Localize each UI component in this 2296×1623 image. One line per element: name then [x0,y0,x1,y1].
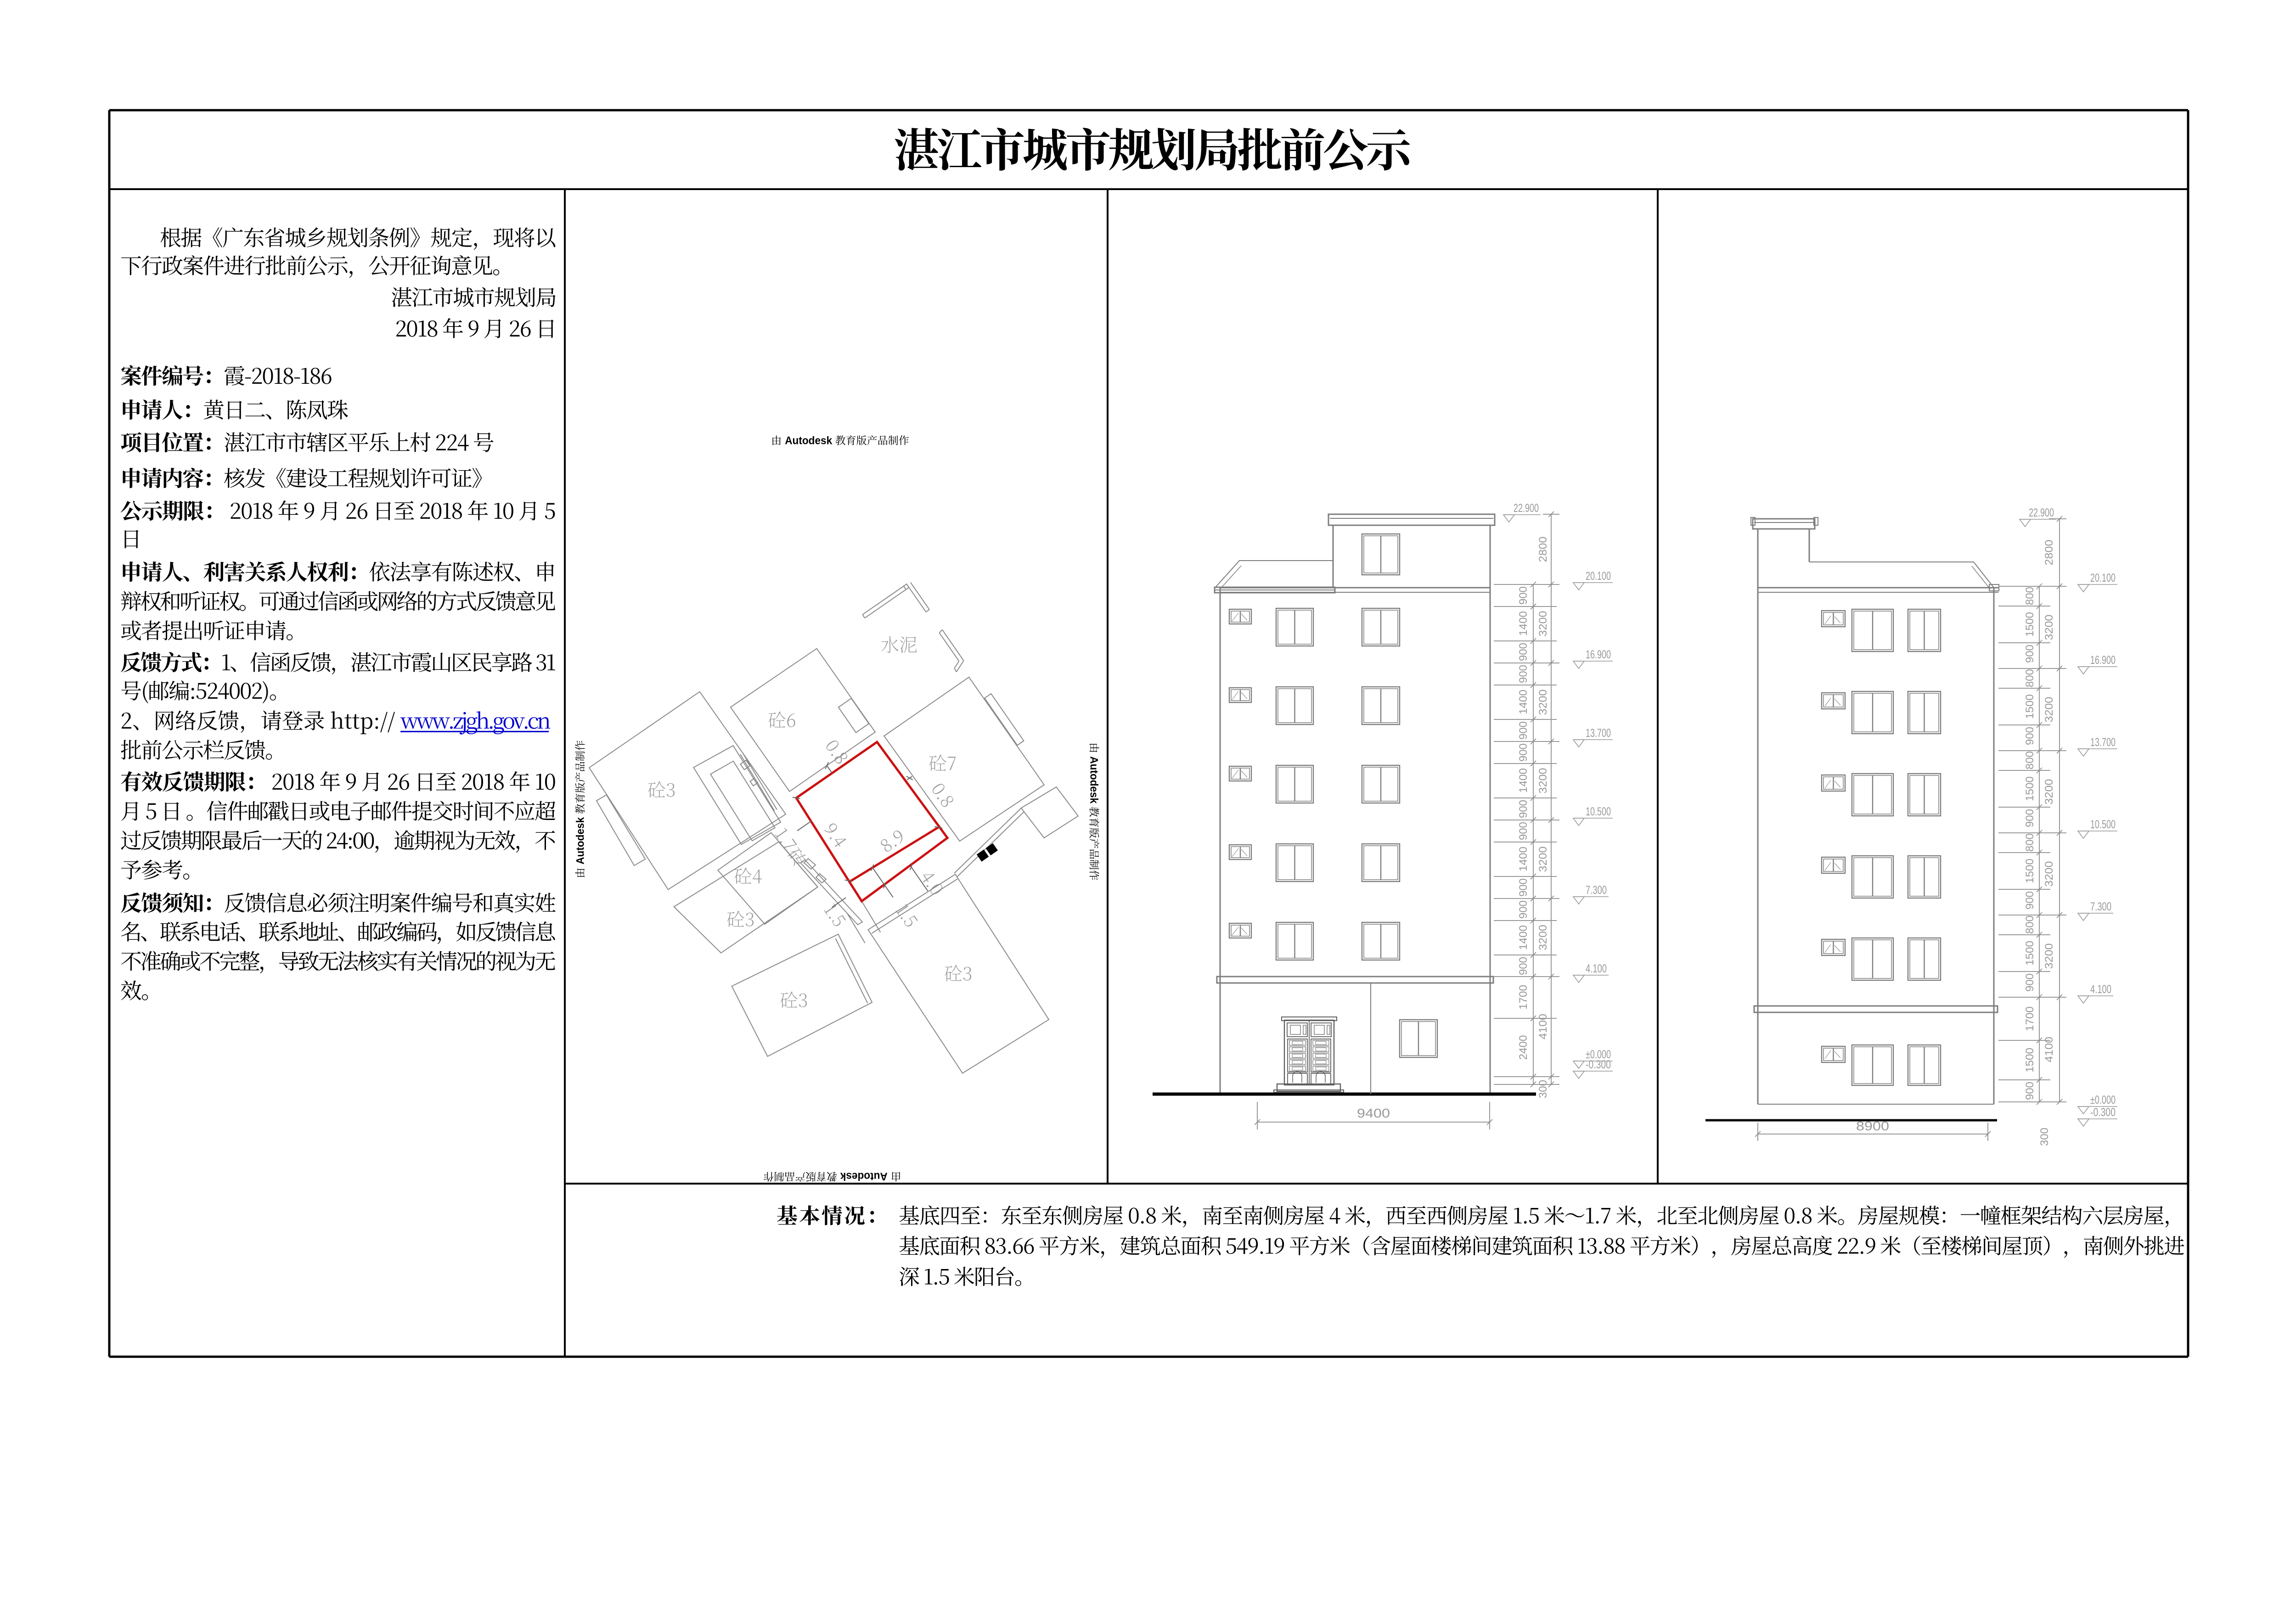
svg-text:Autodesk: Autodesk [840,1170,888,1183]
svg-text:900: 900 [1517,721,1530,740]
svg-text:300: 300 [1537,1080,1549,1098]
svg-text:900: 900 [1517,900,1530,919]
svg-text:1500: 1500 [2024,1048,2036,1073]
svg-text:900: 900 [2024,727,2036,745]
svg-text:16.900: 16.900 [2090,654,2116,667]
svg-text:Autodesk: Autodesk [1088,756,1100,804]
svg-text:3200: 3200 [1537,925,1549,950]
svg-text:800: 800 [2024,833,2036,852]
svg-text:900: 900 [2024,809,2036,827]
svg-text:4100: 4100 [2043,1037,2055,1062]
svg-text:20.100: 20.100 [1586,570,1611,583]
svg-text:1500: 1500 [2024,859,2036,883]
svg-text:3200: 3200 [2043,861,2055,887]
svg-text:22.900: 22.900 [1514,502,1539,515]
svg-text:2800: 2800 [1537,537,1549,562]
svg-text:3200: 3200 [1537,847,1549,872]
svg-text:Autodesk: Autodesk [574,817,586,865]
svg-text:3200: 3200 [2043,779,2055,805]
svg-text:900: 900 [1517,878,1530,897]
svg-text:1500: 1500 [2024,612,2036,637]
svg-text:7.300: 7.300 [1586,884,1607,897]
svg-text:1700: 1700 [2024,1006,2036,1031]
svg-text:900: 900 [1517,822,1530,840]
svg-text:3200: 3200 [2043,615,2055,640]
svg-text:2400: 2400 [1517,1035,1530,1060]
svg-text:900: 900 [2024,1082,2036,1100]
svg-text:9400: 9400 [1357,1106,1390,1120]
svg-text:800: 800 [2024,587,2036,605]
svg-text:900: 900 [1517,800,1530,818]
svg-text:-0.300: -0.300 [2090,1106,2116,1119]
svg-text:10.500: 10.500 [1586,805,1611,818]
svg-text:Autodesk: Autodesk [785,434,833,447]
svg-text:4.100: 4.100 [1586,962,1607,975]
svg-text:1500: 1500 [2024,776,2036,801]
svg-text:900: 900 [1517,643,1530,661]
svg-text:300: 300 [2038,1128,2051,1146]
svg-text:900: 900 [1517,957,1530,975]
svg-text:16.900: 16.900 [1586,648,1611,661]
svg-text:900: 900 [1517,586,1530,605]
svg-text:3200: 3200 [1537,690,1549,715]
svg-text:900: 900 [1517,743,1530,762]
svg-text:900: 900 [2024,973,2036,992]
svg-text:1400: 1400 [1517,925,1530,950]
svg-text:900: 900 [2024,891,2036,910]
svg-text:22.900: 22.900 [2029,506,2054,519]
svg-text:4.100: 4.100 [2090,983,2111,996]
svg-text:1500: 1500 [2024,694,2036,719]
svg-text:3200: 3200 [2043,943,2055,969]
svg-text:3200: 3200 [2043,697,2055,723]
svg-text:8900: 8900 [1856,1119,1889,1133]
svg-text:±0.000: ±0.000 [2090,1094,2116,1106]
svg-text:20.100: 20.100 [2090,572,2116,584]
svg-text:1400: 1400 [1517,611,1530,636]
svg-text:900: 900 [1517,665,1530,683]
svg-text:3200: 3200 [1537,768,1549,794]
svg-text:13.700: 13.700 [1586,727,1611,740]
svg-text:900: 900 [2024,645,2036,663]
svg-text:800: 800 [2024,669,2036,687]
svg-text:1400: 1400 [1517,690,1530,714]
svg-text:13.700: 13.700 [2090,736,2116,749]
svg-text:7.300: 7.300 [2090,900,2111,913]
svg-text:800: 800 [2024,915,2036,934]
svg-text:4100: 4100 [1537,1014,1549,1039]
svg-text:-0.300: -0.300 [1586,1058,1611,1071]
svg-text:10.500: 10.500 [2090,818,2116,831]
svg-text:3200: 3200 [1537,611,1549,637]
svg-text:2800: 2800 [2043,540,2055,566]
svg-text:800: 800 [2024,751,2036,769]
svg-text:1500: 1500 [2024,941,2036,966]
svg-text:1400: 1400 [1517,847,1530,871]
svg-text:1700: 1700 [1517,985,1530,1010]
svg-text:1400: 1400 [1517,768,1530,793]
